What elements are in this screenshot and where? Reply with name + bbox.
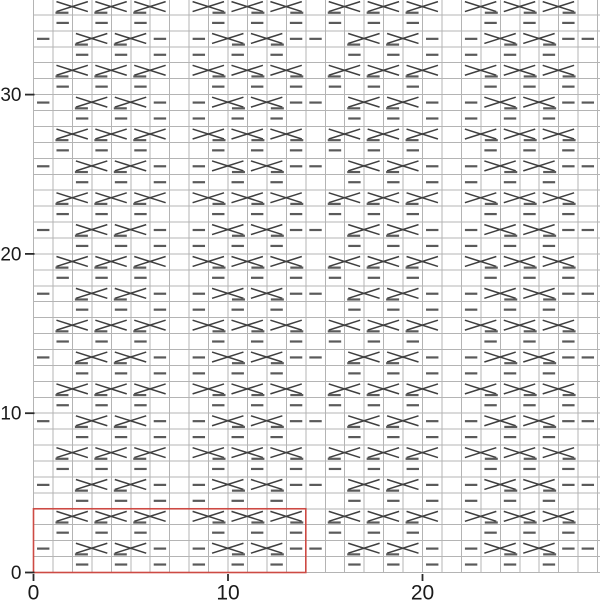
grid xyxy=(34,0,600,572)
left-cross-symbol xyxy=(406,129,438,140)
left-cross-symbol xyxy=(347,97,379,108)
left-cross-symbol xyxy=(406,257,438,268)
left-cross-symbol xyxy=(386,33,418,44)
left-cross-symbol xyxy=(133,448,165,459)
left-cross-symbol xyxy=(94,511,126,522)
x-tick-label: 20 xyxy=(411,582,434,600)
left-cross-symbol xyxy=(406,2,438,13)
knitting-chart-canvas[interactable]: 010203001020 xyxy=(0,0,600,600)
left-cross-symbol xyxy=(347,161,379,172)
left-cross-symbol xyxy=(114,480,146,491)
left-cross-symbol xyxy=(114,97,146,108)
left-cross-symbol xyxy=(55,384,87,395)
left-cross-symbol xyxy=(75,543,107,554)
left-cross-symbol xyxy=(367,193,399,204)
left-cross-symbol xyxy=(133,257,165,268)
stitch-symbols xyxy=(37,2,600,565)
left-cross-symbol xyxy=(133,129,165,140)
y-tick-label: 20 xyxy=(0,244,21,265)
left-cross-symbol xyxy=(386,161,418,172)
left-cross-symbol xyxy=(133,384,165,395)
left-cross-symbol xyxy=(75,161,107,172)
left-cross-symbol xyxy=(55,129,87,140)
left-cross-symbol xyxy=(75,480,107,491)
left-cross-symbol xyxy=(114,352,146,363)
left-cross-symbol xyxy=(94,193,126,204)
left-cross-symbol xyxy=(406,448,438,459)
left-cross-symbol xyxy=(347,480,379,491)
x-tick-label: 10 xyxy=(216,582,239,600)
left-cross-symbol xyxy=(328,384,360,395)
left-cross-symbol xyxy=(55,511,87,522)
left-cross-symbol xyxy=(114,225,146,236)
x-tick-label: 0 xyxy=(28,582,40,600)
left-cross-symbol xyxy=(94,257,126,268)
left-cross-symbol xyxy=(367,257,399,268)
left-cross-symbol xyxy=(367,448,399,459)
left-cross-symbol xyxy=(367,511,399,522)
left-cross-symbol xyxy=(75,288,107,299)
left-cross-symbol xyxy=(133,2,165,13)
y-tick-label: 0 xyxy=(11,563,22,584)
left-cross-symbol xyxy=(75,416,107,427)
left-cross-symbol xyxy=(367,65,399,76)
left-cross-symbol xyxy=(328,2,360,13)
left-cross-symbol xyxy=(328,129,360,140)
left-cross-symbol xyxy=(55,320,87,331)
left-cross-symbol xyxy=(328,320,360,331)
left-cross-symbol xyxy=(367,384,399,395)
left-cross-symbol xyxy=(94,65,126,76)
left-cross-symbol xyxy=(406,384,438,395)
left-cross-symbol xyxy=(386,352,418,363)
stitch-chart-svg: 010203001020 xyxy=(0,0,600,600)
left-cross-symbol xyxy=(75,97,107,108)
left-cross-symbol xyxy=(406,320,438,331)
left-cross-symbol xyxy=(94,2,126,13)
left-cross-symbol xyxy=(406,511,438,522)
left-cross-symbol xyxy=(133,193,165,204)
left-cross-symbol xyxy=(94,448,126,459)
left-cross-symbol xyxy=(406,193,438,204)
left-cross-symbol xyxy=(114,416,146,427)
y-axis: 0102030 xyxy=(0,85,34,584)
left-cross-symbol xyxy=(114,288,146,299)
left-cross-symbol xyxy=(406,65,438,76)
left-cross-symbol xyxy=(347,416,379,427)
y-tick-label: 30 xyxy=(0,85,21,106)
left-cross-symbol xyxy=(386,225,418,236)
left-cross-symbol xyxy=(386,416,418,427)
left-cross-symbol xyxy=(328,65,360,76)
left-cross-symbol xyxy=(386,480,418,491)
left-cross-symbol xyxy=(55,257,87,268)
left-cross-symbol xyxy=(55,193,87,204)
left-cross-symbol xyxy=(133,65,165,76)
left-cross-symbol xyxy=(386,543,418,554)
left-cross-symbol xyxy=(386,288,418,299)
left-cross-symbol xyxy=(114,33,146,44)
left-cross-symbol xyxy=(367,320,399,331)
left-cross-symbol xyxy=(75,225,107,236)
left-cross-symbol xyxy=(328,511,360,522)
left-cross-symbol xyxy=(347,352,379,363)
left-cross-symbol xyxy=(328,448,360,459)
left-cross-symbol xyxy=(328,193,360,204)
left-cross-symbol xyxy=(114,161,146,172)
left-cross-symbol xyxy=(347,33,379,44)
left-cross-symbol xyxy=(133,320,165,331)
left-cross-symbol xyxy=(367,129,399,140)
left-cross-symbol xyxy=(94,320,126,331)
left-cross-symbol xyxy=(328,257,360,268)
x-axis: 01020 xyxy=(28,574,435,600)
left-cross-symbol xyxy=(55,65,87,76)
y-tick-label: 10 xyxy=(0,404,21,425)
left-cross-symbol xyxy=(55,2,87,13)
left-cross-symbol xyxy=(94,384,126,395)
left-cross-symbol xyxy=(94,129,126,140)
left-cross-symbol xyxy=(55,448,87,459)
left-cross-symbol xyxy=(114,543,146,554)
left-cross-symbol xyxy=(347,543,379,554)
left-cross-symbol xyxy=(386,97,418,108)
left-cross-symbol xyxy=(347,288,379,299)
left-cross-symbol xyxy=(347,225,379,236)
left-cross-symbol xyxy=(133,511,165,522)
left-cross-symbol xyxy=(367,2,399,13)
left-cross-symbol xyxy=(75,33,107,44)
left-cross-symbol xyxy=(75,352,107,363)
